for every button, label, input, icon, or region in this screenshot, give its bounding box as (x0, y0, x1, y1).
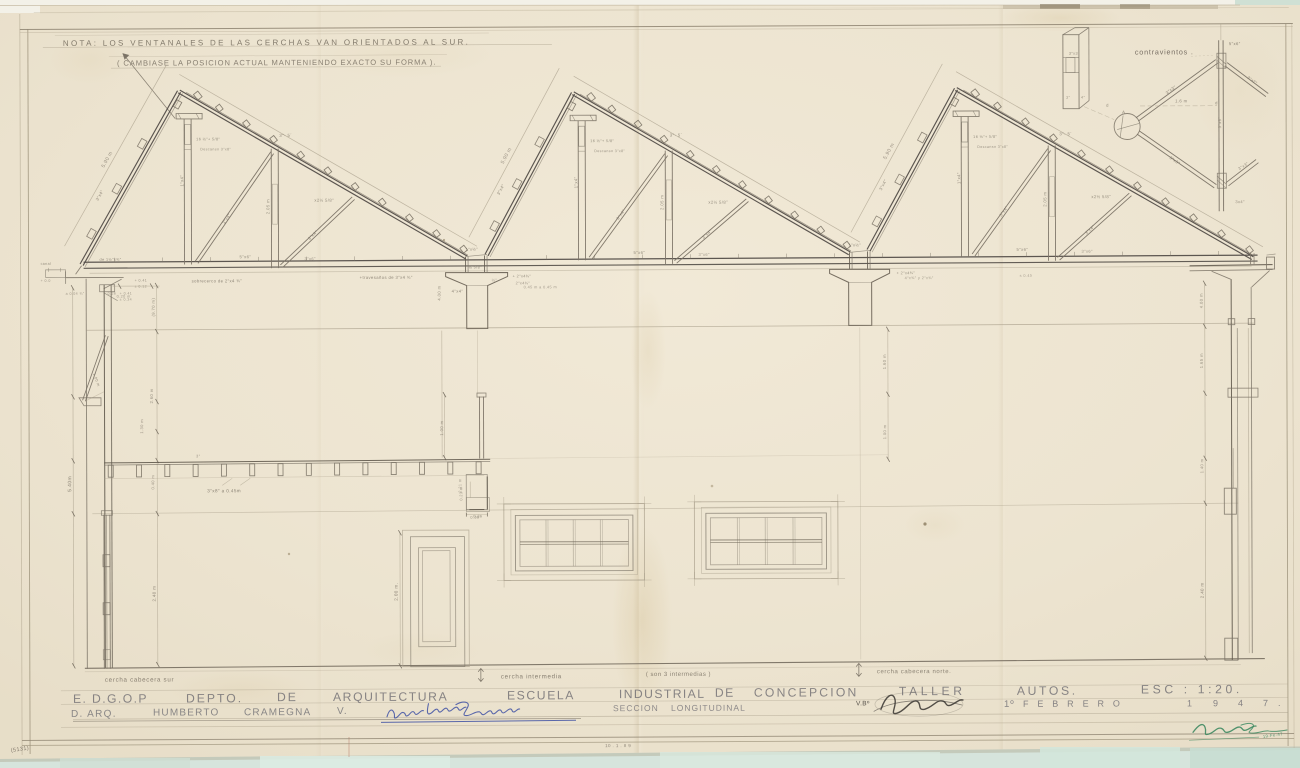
svg-text:.: . (1278, 698, 1281, 708)
svg-text:cercha cabecera sur: cercha cabecera sur (105, 676, 174, 683)
svg-text:0.45 m a 0.45 m: 0.45 m a 0.45 m (524, 285, 557, 289)
svg-text:a 0.04 ¾": a 0.04 ¾" (66, 292, 85, 296)
svg-text:DE: DE (715, 686, 735, 700)
svg-text:3x4": 3x4" (1235, 199, 1245, 204)
svg-text:2.21 m: 2.21 m (458, 479, 462, 493)
svg-text:s 0.45: s 0.45 (1020, 274, 1033, 278)
svg-text:sobrecerco de 2"x4 ¾": sobrecerco de 2"x4 ¾" (192, 278, 243, 283)
svg-text:16 ½"+ 5/8": 16 ½"+ 5/8" (973, 135, 997, 139)
svg-text:HUMBERTO: HUMBERTO (153, 707, 220, 718)
svg-text:x2½ 5/8": x2½ 5/8" (1091, 194, 1111, 199)
svg-text:( CAMBIASE LA POSICION A: ( CAMBIASE LA POSICION ACTUAL MANTENIEND… (117, 58, 436, 68)
svg-text:1"x½": 1"x½" (466, 247, 479, 252)
svg-text:INDUSTRIAL: INDUSTRIAL (619, 687, 706, 701)
svg-text:0.26: 0.26 (108, 292, 117, 296)
svg-text:1.00 m: 1.00 m (882, 424, 887, 439)
svg-text:2.40 m: 2.40 m (1200, 582, 1205, 598)
svg-text:5"x6": 5"x6" (1017, 247, 1029, 252)
svg-text:1.6 m: 1.6 m (1175, 98, 1188, 103)
svg-text:3"x6": 3"x6" (1082, 249, 1093, 254)
svg-text:5"x6": 5"x6" (1229, 41, 1241, 46)
svg-text:1"x4": 1"x4" (573, 176, 578, 188)
svg-text:ARQUITECTURA: ARQUITECTURA (333, 690, 448, 704)
svg-text:½ 5/8": ½ 5/8" (469, 266, 483, 270)
svg-text:+ 0.0: + 0.0 (41, 279, 51, 283)
svg-text:16 ½"+ 5/8": 16 ½"+ 5/8" (196, 137, 220, 141)
svg-text:1.00 m: 1.00 m (439, 420, 444, 435)
svg-text:( son 3 intermedias ): ( son 3 intermedias ) (646, 672, 711, 678)
svg-text:3": 3" (196, 454, 201, 458)
svg-text:CRAMEGNA: CRAMEGNA (244, 707, 311, 718)
svg-text:3": 3" (1066, 96, 1071, 100)
svg-text:2.05 m: 2.05 m (265, 199, 270, 214)
svg-text:AUTOS.: AUTOS. (1017, 684, 1078, 698)
svg-text:4.00 m: 4.00 m (1199, 293, 1204, 308)
svg-text:7: 7 (1263, 698, 1268, 708)
svg-text:+ 0.41: + 0.41 (120, 292, 133, 296)
svg-text:4.00 m: 4.00 m (437, 285, 442, 300)
svg-text:+travesaños de 3"x4 ¾": +travesaños de 3"x4 ¾" (360, 275, 413, 280)
svg-text:± 0.34: ± 0.34 (120, 298, 132, 302)
svg-text:canal: canal (41, 262, 52, 266)
svg-text:4"x¾" y 2"x¾": 4"x¾" y 2"x¾" (905, 276, 934, 280)
svg-text:1.60 m: 1.60 m (882, 354, 887, 369)
svg-text:3°- 5´: 3°- 5´ (1059, 131, 1072, 136)
svg-text:0.40 m: 0.40 m (150, 475, 155, 490)
svg-text:d: d (1106, 103, 1109, 108)
svg-text:1"x4": 1"x4" (179, 175, 184, 187)
svg-text:1"x4": 1"x4" (956, 172, 961, 184)
svg-text:4: 4 (1238, 698, 1243, 708)
svg-text:2.60 m: 2.60 m (149, 388, 154, 403)
svg-text:2.05 m: 2.05 m (659, 195, 664, 210)
svg-text:ESCUELA: ESCUELA (507, 688, 575, 702)
svg-text:A: A (1122, 110, 1125, 115)
svg-text:LONGITUDINAL: LONGITUDINAL (671, 703, 746, 713)
svg-text:1: 1 (1187, 698, 1192, 708)
svg-text:x2½ 5/8": x2½ 5/8" (708, 200, 728, 205)
svg-text:Descanso 3"x8": Descanso 3"x8" (200, 147, 231, 151)
svg-text:contravientos .: contravientos . (1135, 47, 1194, 56)
svg-text:D. ARQ.: D. ARQ. (71, 709, 117, 720)
svg-text:DE: DE (277, 690, 298, 704)
svg-text:1.30 m: 1.30 m (139, 419, 144, 434)
svg-text:(9.70 m): (9.70 m) (151, 298, 156, 317)
svg-text:Descanso 3"x8": Descanso 3"x8" (594, 149, 625, 153)
svg-text:4"x4": 4"x4" (452, 289, 464, 294)
svg-text:cercha intermedia: cercha intermedia (501, 673, 562, 680)
svg-text:cercha cabecera norte.: cercha cabecera norte. (877, 669, 952, 675)
svg-text:2.40 m: 2.40 m (152, 586, 157, 602)
svg-text:2.00 m.: 2.00 m. (394, 583, 399, 601)
svg-text:CONCEPCION: CONCEPCION (754, 685, 859, 699)
svg-text:9: 9 (1213, 698, 1218, 708)
svg-text:SECCION: SECCION (613, 703, 659, 713)
svg-text:NOTA: LOS VENTANALES DE: NOTA: LOS VENTANALES DE LAS CERCHAS VAN … (63, 38, 470, 48)
svg-text:± 0.12: ± 0.12 (135, 285, 147, 289)
svg-text:5"x6": 5"x6" (634, 250, 646, 255)
svg-text:4": 4" (1081, 96, 1086, 100)
svg-text:5"x6": 5"x6" (240, 254, 252, 259)
svg-text:E. D.G.O.P: E. D.G.O.P (73, 692, 148, 706)
svg-text:DEPTO.: DEPTO. (186, 691, 243, 705)
svg-text:d: d (1215, 100, 1218, 105)
svg-text:Descanso 3"x8": Descanso 3"x8" (977, 145, 1008, 149)
svg-text:3"x6": 3"x6" (305, 256, 316, 261)
svg-text:+ 2"x4¾": + 2"x4¾" (513, 274, 532, 278)
svg-text:1.65 m: 1.65 m (1199, 353, 1204, 368)
svg-text:3"x6": 3"x6" (1217, 117, 1222, 128)
svg-text:F E B R E R O: F E B R E R O (1023, 699, 1123, 709)
svg-text:+ 0.41: + 0.41 (135, 279, 148, 283)
svg-text:1"x½": 1"x½" (849, 242, 862, 247)
svg-text:TALLER: TALLER (899, 684, 966, 698)
svg-text:V.: V. (337, 706, 348, 717)
svg-text:de 1½"x¾": de 1½"x¾" (100, 258, 122, 262)
svg-text:1º: 1º (1004, 699, 1015, 710)
svg-text:1.40 m: 1.40 m (1199, 458, 1204, 473)
svg-text:V.Bº: V.Bº (856, 700, 870, 707)
svg-text:3"x8" a 0.45m: 3"x8" a 0.45m (207, 488, 241, 493)
svg-text:x2½ 5/8": x2½ 5/8" (314, 198, 334, 203)
svg-text:3"x6": 3"x6" (699, 252, 710, 257)
svg-text:3"x3: 3"x3 (1069, 52, 1078, 56)
svg-text:0.36: 0.36 (473, 515, 482, 519)
svg-text:ESC : 1:20.: ESC : 1:20. (1141, 682, 1243, 696)
svg-text:5.40m: 5.40m (67, 476, 73, 492)
svg-text:+ 2"x4¾": + 2"x4¾" (897, 271, 916, 275)
svg-text:½": ½" (492, 277, 498, 282)
svg-text:3°- 5´: 3°- 5´ (279, 133, 292, 138)
svg-text:10 . 1 . 8 9: 10 . 1 . 8 9 (605, 743, 631, 748)
svg-text:3°- 5´: 3°- 5´ (670, 132, 683, 137)
svg-text:16 ½"+ 5/8": 16 ½"+ 5/8" (590, 139, 614, 143)
svg-text:2.05 m: 2.05 m (1042, 191, 1047, 206)
